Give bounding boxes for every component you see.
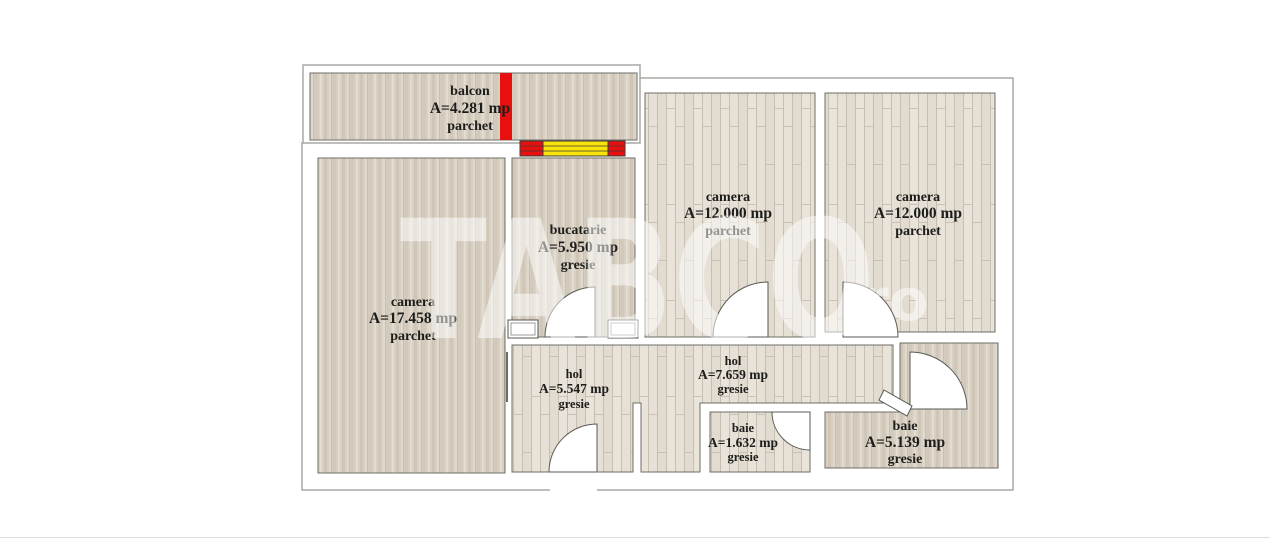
- watermark: TABCO .ro: [400, 185, 928, 377]
- window-yellow: [543, 141, 608, 156]
- floor-plan-image: balcon A=4.281 mp parchet camera A=17.45…: [0, 0, 1270, 539]
- camera-2-label-name: camera: [896, 190, 940, 205]
- baie-mica-label-name: baie: [732, 421, 755, 435]
- balcon-label-floor: parchet: [447, 119, 493, 134]
- baie-mica-label-area: A=1.632 mp: [708, 435, 778, 450]
- balcon-label-area: A=4.281 mp: [430, 100, 510, 117]
- watermark-text: TABCO: [400, 185, 875, 377]
- baie-mica-label-floor: gresie: [727, 450, 758, 464]
- camera-2-label-area: A=12.000 mp: [874, 205, 962, 222]
- baie-mare-label-area: A=5.139 mp: [865, 434, 945, 451]
- watermark-suffix: .ro: [838, 266, 928, 334]
- hol-2-label-floor: gresie: [717, 382, 748, 396]
- baie-mare-label-name: baie: [893, 419, 918, 434]
- baie-mare-label-floor: gresie: [888, 452, 923, 467]
- window-red-left: [520, 141, 543, 156]
- camera-2-label-floor: parchet: [895, 224, 941, 239]
- hol-1-label-floor: gresie: [558, 397, 589, 411]
- balcon-label-name: balcon: [450, 84, 490, 99]
- window-red-right: [608, 141, 625, 156]
- room-balcon: balcon A=4.281 mp parchet: [310, 73, 637, 140]
- window-strip: [520, 141, 625, 156]
- hol-1-label-area: A=5.547 mp: [539, 381, 609, 396]
- floor-plan-svg: balcon A=4.281 mp parchet camera A=17.45…: [0, 0, 1270, 539]
